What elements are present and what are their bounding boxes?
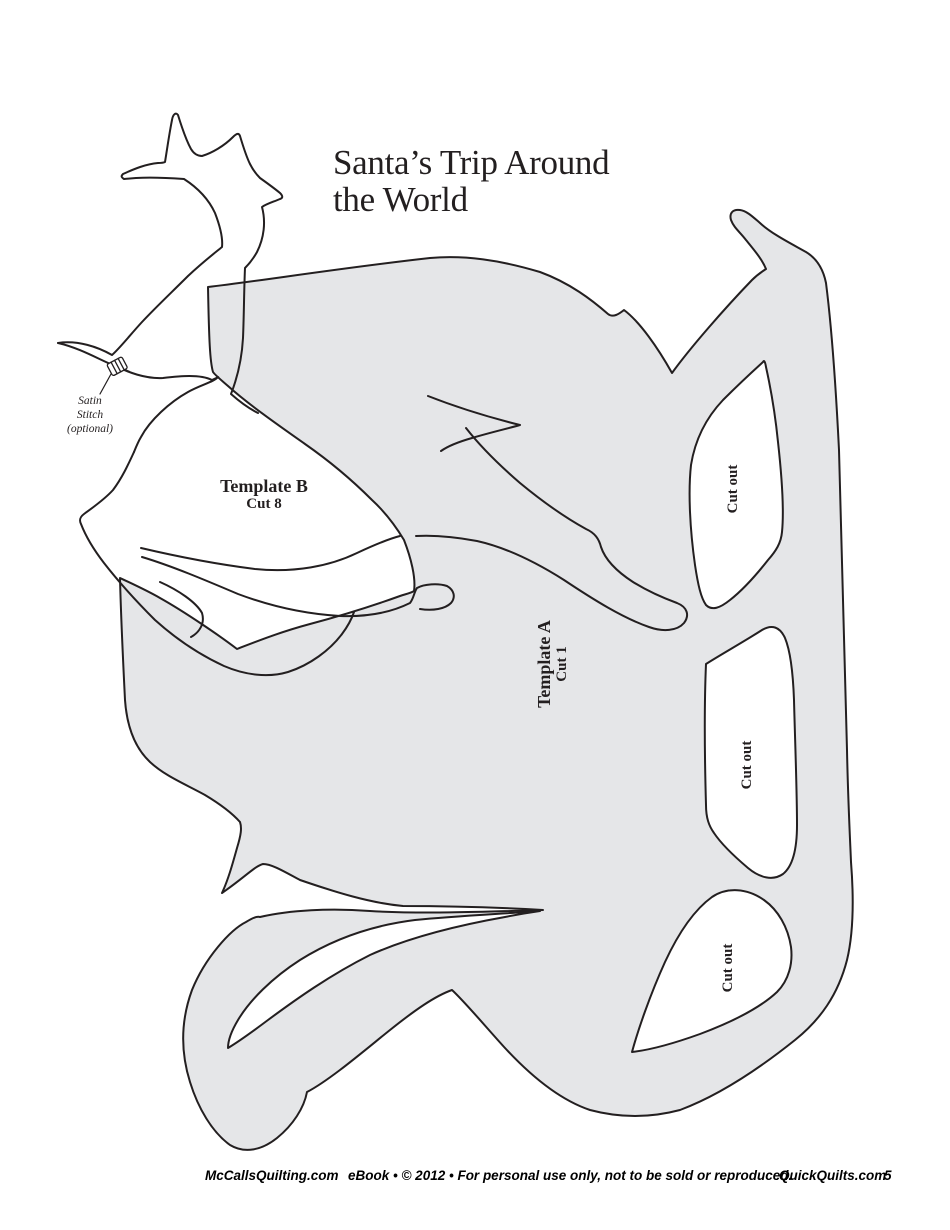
page-title: Santa’s Trip Around the World [333,144,609,218]
footer-mccalls-site: McCallsQuilting.com [205,1168,339,1183]
cutout-label-2: Cut out [739,725,757,805]
page-title-line2: the World [333,181,609,218]
satin-stitch-leader-line [100,374,111,394]
satin-note-line2: Stitch [35,408,145,422]
template-a-label: Template A Cut 1 [534,584,578,744]
template-b-name: Template B [184,476,344,496]
page-footer: McCallsQuilting.com eBook • © 2012 • For… [0,1168,950,1188]
satin-note-line3: (optional) [35,422,145,436]
footer-quickquilts-site: QuickQuilts.com [779,1168,886,1183]
template-a-name: Template A [534,584,554,744]
template-b-cut-count: Cut 8 [184,496,344,513]
cutout-label-3: Cut out [720,928,738,1008]
satin-stitch-eye-icon [107,357,128,376]
footer-page-number: 5 [884,1168,892,1183]
cutout-label-1: Cut out [725,449,743,529]
page-title-line1: Santa’s Trip Around [333,144,609,181]
template-b-label: Template B Cut 8 [184,476,344,513]
satin-stitch-note: Satin Stitch (optional) [35,394,145,436]
footer-copyright-notice: eBook • © 2012 • For personal use only, … [348,1168,738,1183]
template-a-cut-count: Cut 1 [554,584,571,744]
ebook-page: Santa’s Trip Around the World Template B… [0,0,950,1230]
reindeer-front-leg-top-line [141,536,400,570]
satin-note-line1: Satin [35,394,145,408]
